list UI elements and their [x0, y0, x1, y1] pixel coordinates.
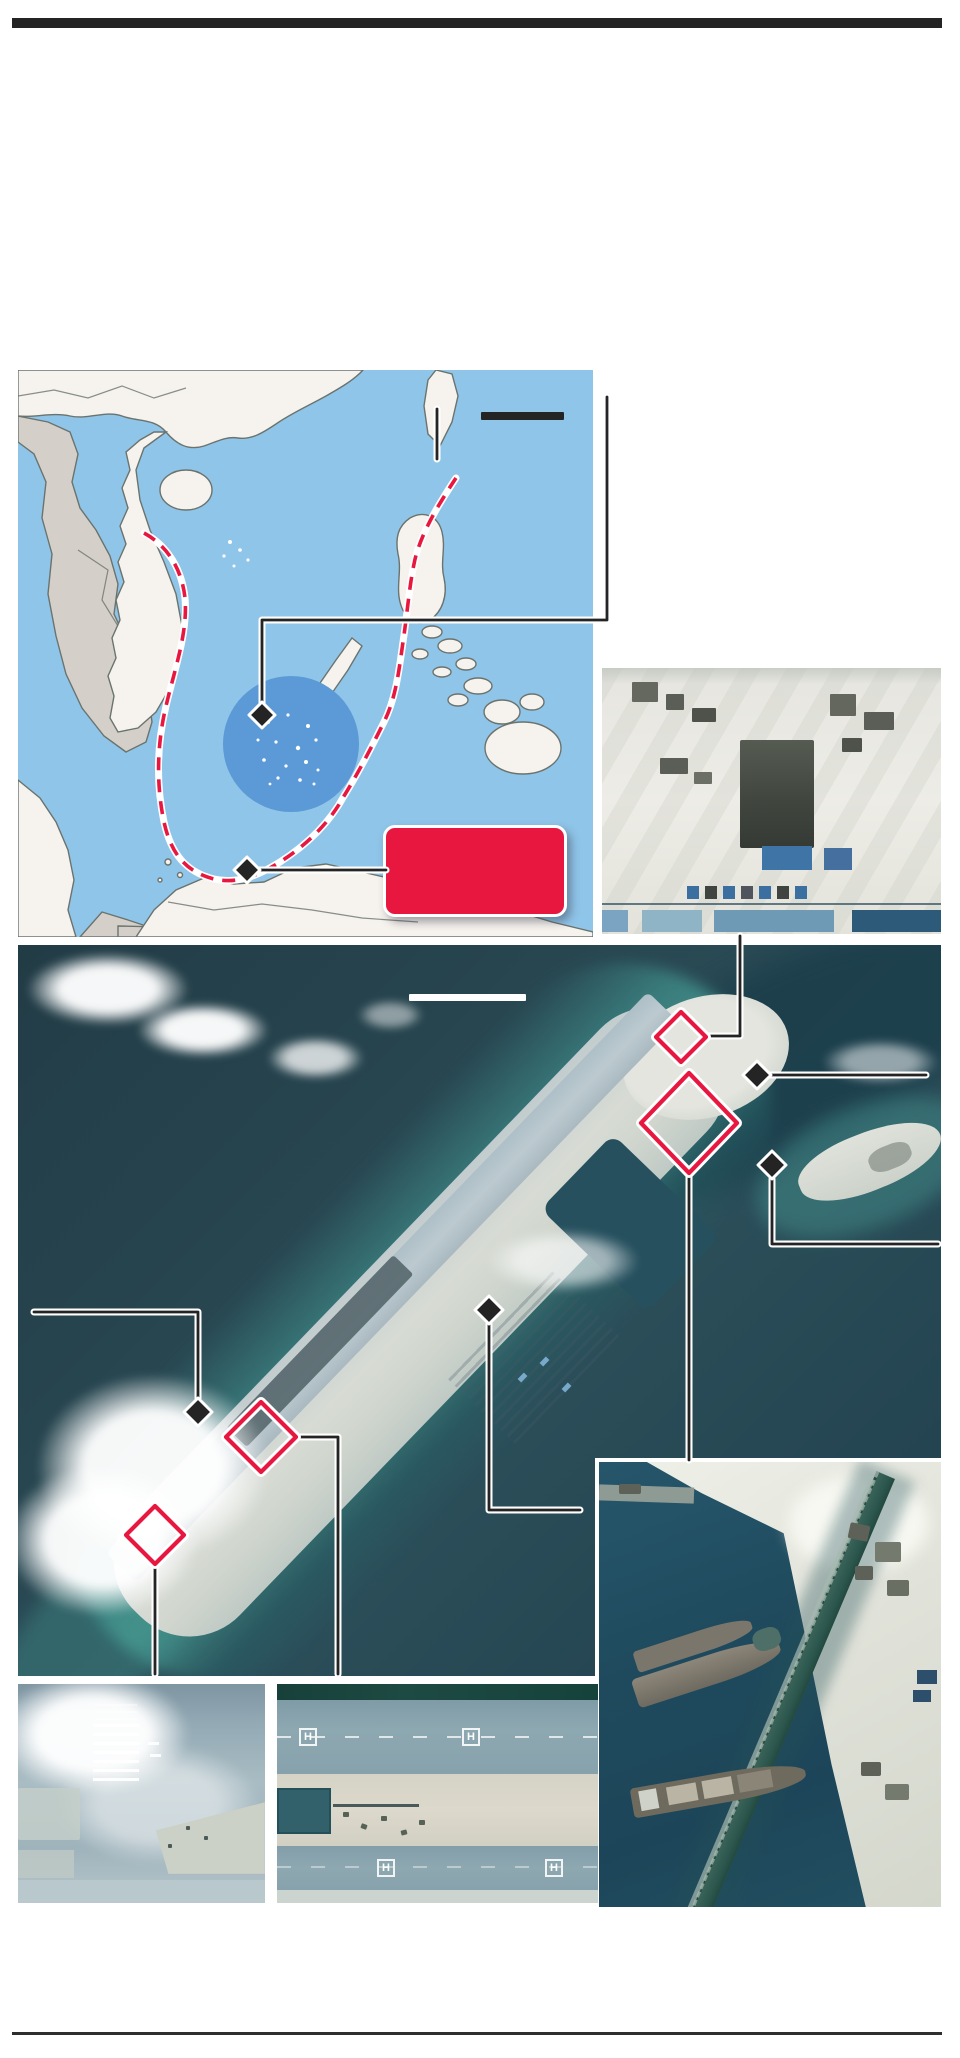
structure [660, 758, 688, 774]
blue-structure [917, 1670, 937, 1684]
teal-building [277, 1788, 331, 1834]
spratly-highlight-circle [223, 676, 359, 812]
seawall-line [602, 903, 941, 905]
construction-debris [887, 1580, 909, 1596]
bottom-rule [12, 2032, 942, 2035]
map-hainan [160, 470, 212, 510]
structure [864, 712, 894, 730]
blue-structure [913, 1690, 931, 1702]
debris [186, 1826, 190, 1830]
cloud [488, 1230, 638, 1292]
faint-markings [95, 1704, 137, 1721]
pale-apron [18, 1788, 80, 1840]
debris [168, 1844, 172, 1848]
blue-roof-building [824, 848, 852, 870]
helipad-strip-inset: H H H H [277, 1684, 598, 1903]
cloud [18, 1465, 198, 1615]
construction-debris [875, 1542, 901, 1562]
helipad-marking: H [299, 1728, 317, 1746]
construction-debris [861, 1762, 881, 1776]
dark-foundation [740, 740, 814, 848]
map-mindanao [485, 722, 561, 774]
top-rule [12, 18, 942, 28]
pale-apron [18, 1850, 74, 1878]
centerline-dashes [277, 1736, 598, 1738]
helipad-marking: H [377, 1859, 395, 1877]
small-quay [599, 1484, 695, 1503]
blue-roof-building [762, 846, 812, 870]
helipad-marking: H [462, 1728, 480, 1746]
debris [419, 1820, 425, 1825]
vegetation-strip [277, 1684, 598, 1700]
structure [666, 694, 684, 710]
debris [381, 1816, 387, 1821]
pale-strip [277, 1890, 598, 1903]
container-row [687, 886, 807, 899]
cloud [823, 1040, 938, 1084]
structure [842, 738, 862, 752]
cloud [268, 1037, 363, 1079]
harbor-inset [595, 1458, 945, 1911]
construction-debris [885, 1784, 909, 1800]
helipad-marking: H [545, 1859, 563, 1877]
structure [692, 708, 716, 722]
quay-strip [602, 906, 941, 934]
construction-debris [855, 1566, 873, 1580]
pipe-line [333, 1804, 419, 1807]
structure [830, 694, 856, 716]
runway-threshold-inset [18, 1684, 265, 1903]
construction-site-inset [602, 668, 941, 934]
debris [204, 1836, 208, 1840]
cloud [138, 1003, 268, 1057]
infographic-page: H H H H [0, 0, 960, 2058]
runway-marking [148, 1742, 159, 1745]
lower-band [18, 1880, 265, 1903]
quay-structure [619, 1484, 641, 1494]
runway-marking [150, 1754, 161, 1757]
map-label-box [383, 825, 567, 917]
cloud [358, 1000, 423, 1030]
debris [343, 1812, 349, 1817]
threshold-markings [93, 1724, 139, 1782]
structure [694, 772, 712, 784]
structure [632, 682, 658, 702]
